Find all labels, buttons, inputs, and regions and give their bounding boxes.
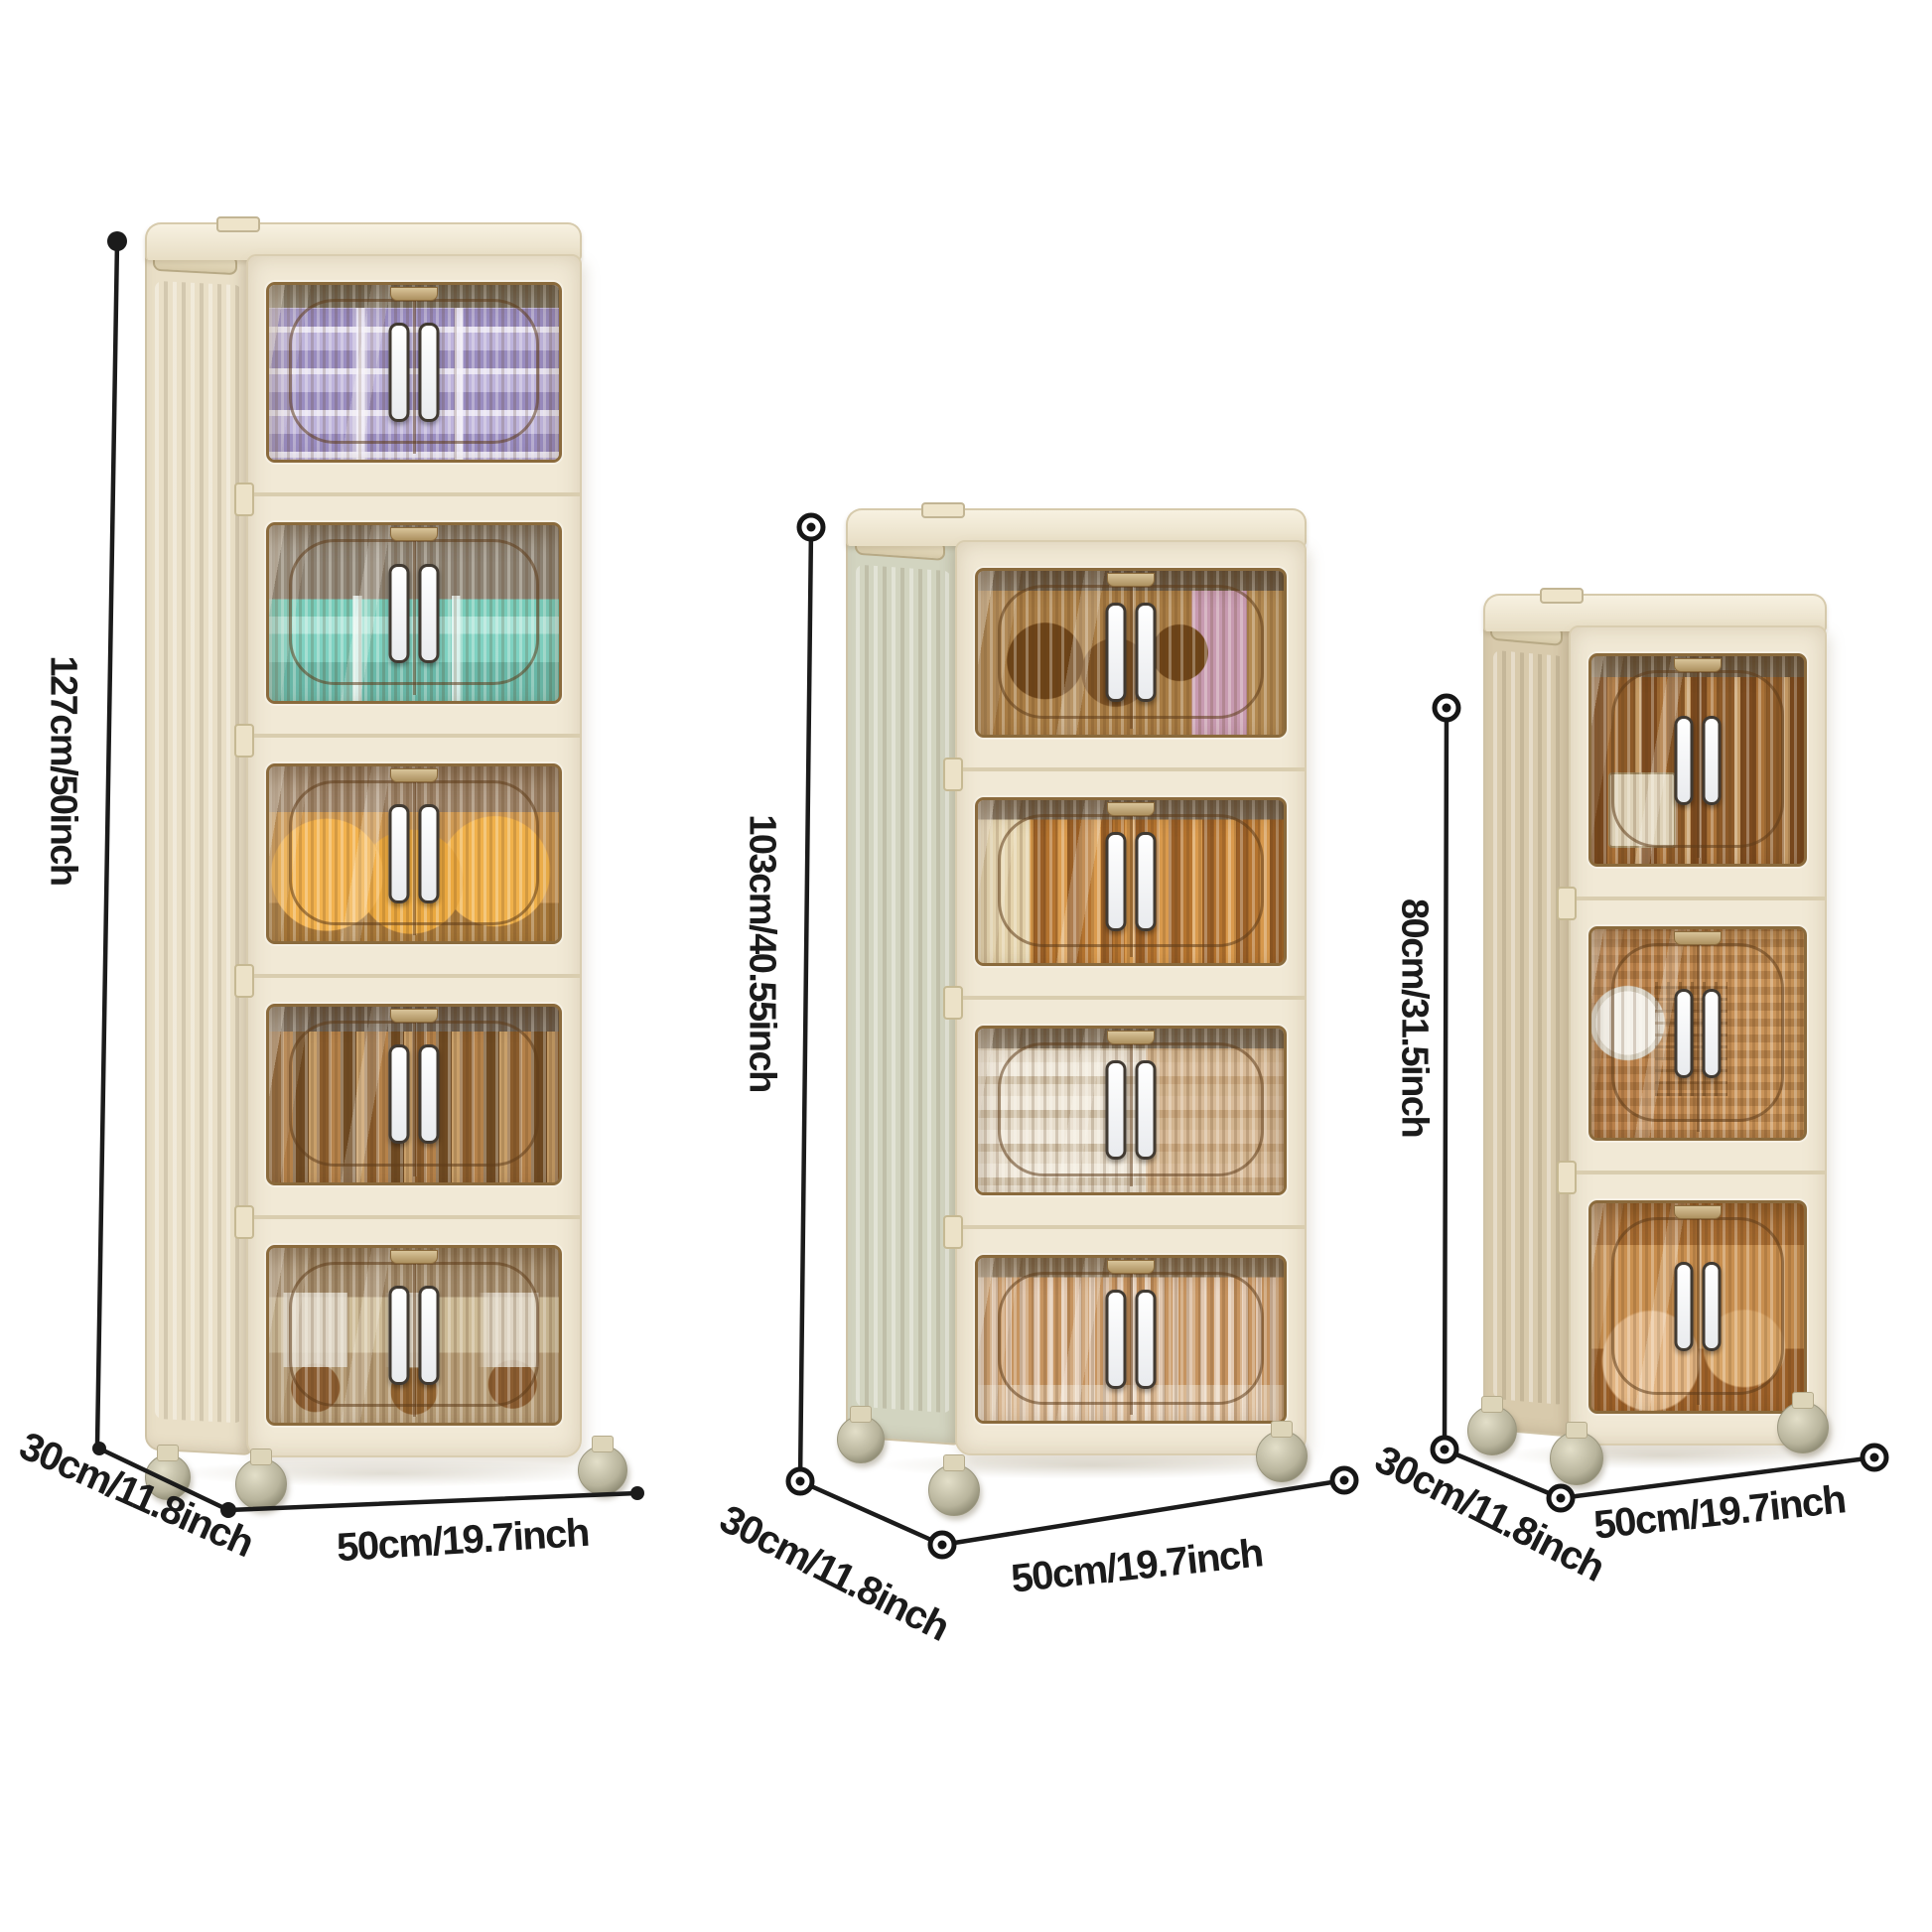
door-handle xyxy=(1675,1262,1694,1351)
caster-wheel xyxy=(1467,1406,1517,1455)
tier-door-window xyxy=(1588,926,1807,1140)
cabinet-three-tier xyxy=(0,0,1932,1932)
cabinet-side-panel xyxy=(1483,602,1575,1438)
storage-tier-3 xyxy=(1571,1171,1825,1444)
lid-clip xyxy=(1540,588,1584,604)
door-handle xyxy=(1675,716,1694,805)
tier-door-window xyxy=(1588,653,1807,867)
caster-wheel xyxy=(1550,1432,1603,1485)
door-handle xyxy=(1703,1262,1722,1351)
height-dimension-label: 127cm/50inch xyxy=(42,655,84,885)
tier-door-window xyxy=(1588,1200,1807,1414)
height-dimension-label: 103cm/40.55inch xyxy=(741,814,783,1092)
cabinet-front xyxy=(1569,625,1827,1446)
size-chart-image: 127cm/50inch 30cm/11.8inch 50cm/19.7inch… xyxy=(0,0,1932,1932)
door-handle xyxy=(1703,716,1722,805)
door-handles xyxy=(1675,1262,1722,1351)
door-handle xyxy=(1675,989,1694,1078)
storage-tier-1 xyxy=(1571,627,1825,897)
door-handles xyxy=(1675,716,1722,805)
door-clip xyxy=(1674,1205,1722,1219)
cabinet-shadow xyxy=(1499,1442,1827,1469)
door-clip xyxy=(1674,658,1722,672)
storage-tier-2 xyxy=(1571,897,1825,1170)
door-handles xyxy=(1675,989,1722,1078)
door-handle xyxy=(1703,989,1722,1078)
height-dimension-label: 80cm/31.5inch xyxy=(1393,898,1436,1137)
side-ribs xyxy=(1493,650,1565,1405)
caster-wheel xyxy=(1777,1402,1829,1453)
door-clip xyxy=(1674,931,1722,945)
